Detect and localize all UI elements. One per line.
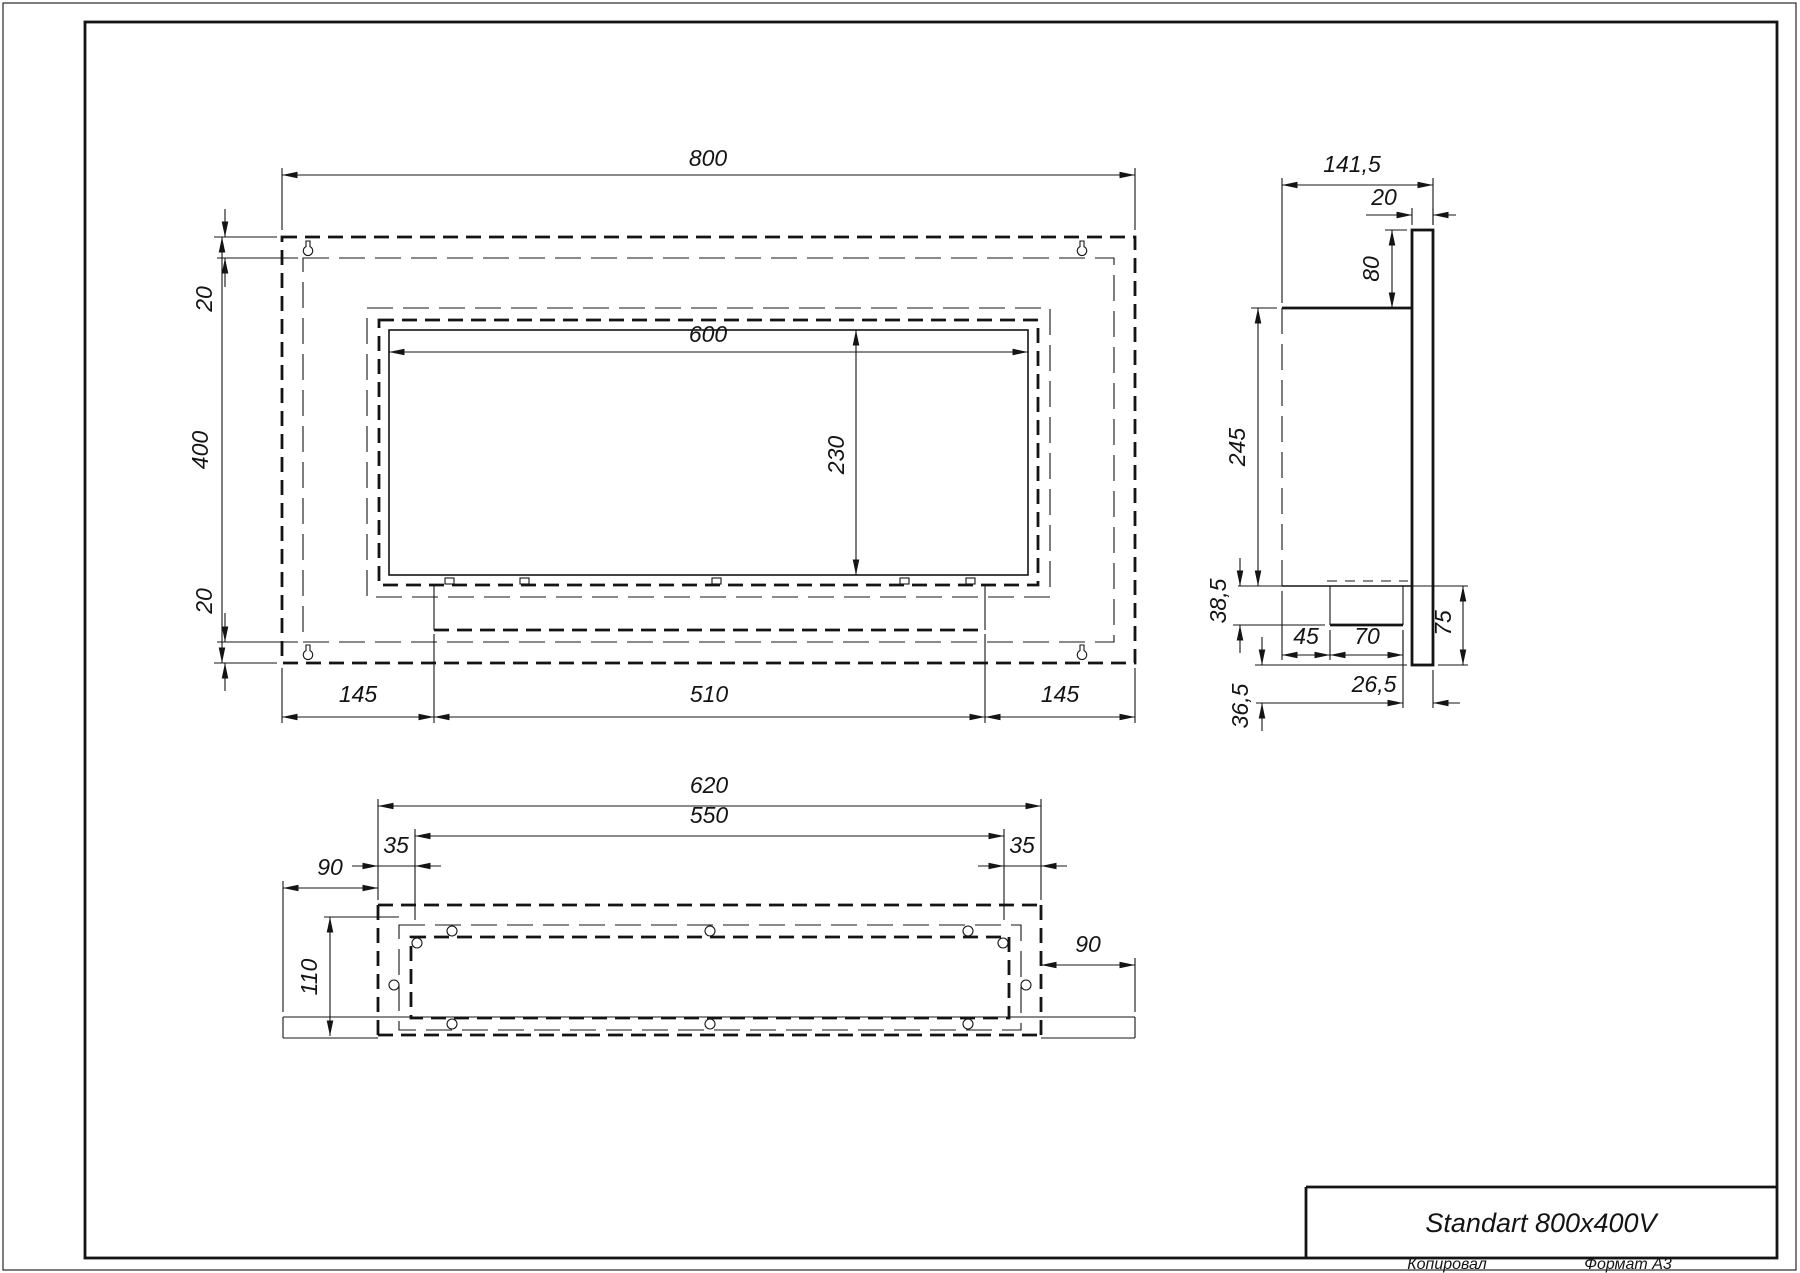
front-outer-panel-hidden-outline xyxy=(282,237,1135,663)
dim-label: 45 xyxy=(1293,623,1319,649)
front-view: 800 400 20 20 600 230 xyxy=(187,145,1135,723)
side-front-panel xyxy=(1412,230,1433,665)
side-burner-sides xyxy=(1330,586,1403,625)
dim-label: 36,5 xyxy=(1227,683,1253,728)
opening-visible-edge xyxy=(389,330,1028,575)
dim-label: 35 xyxy=(383,832,409,858)
dim-label: 20 xyxy=(191,588,217,615)
drawing-sheet: 800 400 20 20 600 230 xyxy=(0,0,1800,1273)
dim-label: 400 xyxy=(187,431,213,470)
dim-label: 145 xyxy=(1041,681,1080,707)
dim-label: 20 xyxy=(191,286,217,313)
bottom-opening-frame-hidden xyxy=(411,937,1009,1018)
dim-label: 110 xyxy=(296,958,322,995)
tray-side-edges xyxy=(434,585,985,630)
dim-insets: 35 35 xyxy=(352,832,1067,866)
dim-label: 38,5 xyxy=(1205,578,1231,623)
stud-bolts xyxy=(389,926,1031,1029)
keyhole-slot-icon xyxy=(1077,241,1086,256)
keyhole-slot-icon xyxy=(1077,645,1086,660)
keyhole-slot-icon xyxy=(303,241,312,256)
opening-outer-hidden-outline xyxy=(367,308,1050,597)
dim-stud-span: 550 xyxy=(415,802,1004,920)
drawing-frame xyxy=(85,22,1777,1258)
bottom-view: 620 550 35 35 90 90 xyxy=(283,772,1135,1038)
technical-drawing: 800 400 20 20 600 230 xyxy=(0,0,1800,1273)
product-title: Standart 800x400V xyxy=(1425,1208,1659,1238)
dim-label: 35 xyxy=(1009,832,1035,858)
dim-label: 70 xyxy=(1354,623,1380,649)
dim-label: 620 xyxy=(690,772,729,798)
dim-label: 80 xyxy=(1358,256,1384,282)
dim-opening-height: 230 xyxy=(823,330,856,575)
format-label: Формат А3 xyxy=(1584,1256,1672,1273)
dim-body-height: 245 xyxy=(1224,308,1277,586)
title-block: Standart 800x400V xyxy=(1306,1187,1777,1258)
dim-label: 141,5 xyxy=(1323,151,1381,177)
outer-border xyxy=(3,3,1796,1270)
dim-bottom-row: 145 510 145 xyxy=(282,634,1135,723)
dim-label: 230 xyxy=(823,436,849,476)
dim-inner-depth: 110 xyxy=(296,917,399,1036)
dim-lower-ledge: 75 xyxy=(1430,586,1468,665)
dim-right-overhang: 90 xyxy=(1041,931,1135,1012)
dim-label: 90 xyxy=(1075,931,1101,957)
dim-panel-thickness: 20 xyxy=(1366,184,1456,225)
dim-opening-width: 600 xyxy=(389,321,1028,352)
sheet-frame xyxy=(3,3,1796,1270)
dim-label: 90 xyxy=(317,854,343,880)
dim-label: 510 xyxy=(690,681,729,707)
dim-label: 20 xyxy=(1370,184,1397,210)
copied-by-label: Копировал xyxy=(1407,1256,1487,1273)
side-view: 141,5 20 80 245 38,5 xyxy=(1205,151,1468,731)
dim-label: 75 xyxy=(1430,610,1456,636)
dim-label: 550 xyxy=(690,802,729,828)
dim-label: 800 xyxy=(689,145,728,171)
dim-top-drop: 80 xyxy=(1358,230,1407,308)
opening-frame-hidden-outline xyxy=(379,320,1038,585)
bottom-inner-fold-hidden xyxy=(399,925,1021,1030)
dim-label: 600 xyxy=(689,321,728,347)
dim-label: 26,5 xyxy=(1351,671,1397,697)
weld-tabs xyxy=(445,578,975,584)
dim-label: 245 xyxy=(1224,428,1250,468)
keyhole-slot-icon xyxy=(303,645,312,660)
dim-label: 145 xyxy=(339,681,378,707)
dim-overall-width: 800 xyxy=(282,145,1135,230)
